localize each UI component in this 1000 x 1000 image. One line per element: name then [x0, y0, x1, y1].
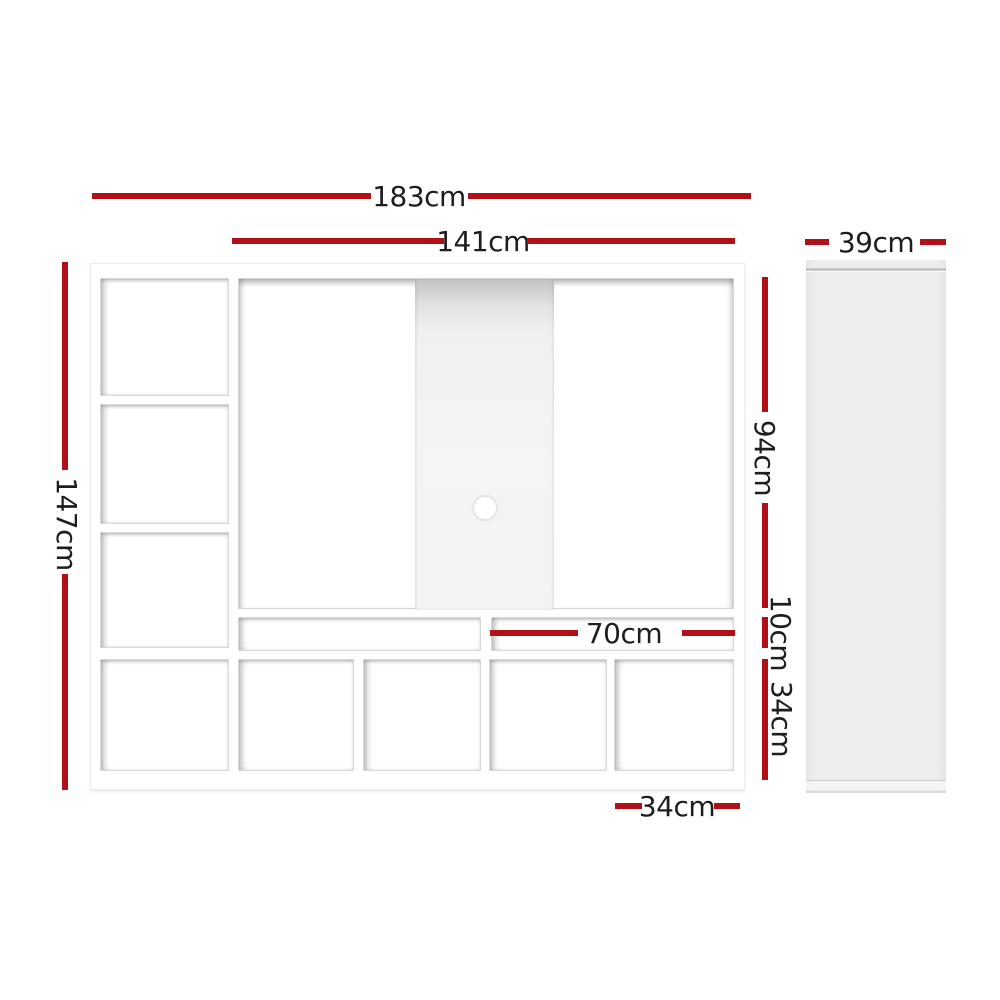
cubby-opening-2 [238, 659, 354, 771]
dimension-diagram: 183cm 141cm 39cm 147cm 94cm 10cm 34cm 70… [0, 0, 1000, 1000]
dim-tv-height-label: 94cm [750, 420, 778, 496]
shelf-opening-left-top [100, 278, 229, 396]
dim-shelf-width-line-right [682, 630, 735, 636]
dim-tv-width-line-right [527, 238, 735, 244]
shelf-opening-left-bottom [100, 532, 229, 648]
media-shelf-opening-left [238, 617, 481, 651]
dim-overall-width-line-right [468, 193, 751, 199]
dim-tv-width-label: 141cm [436, 228, 530, 256]
dim-cubby-width-label: 34cm [639, 793, 715, 821]
dim-overall-height-line-top [62, 262, 68, 470]
dim-overall-height-line-bottom [62, 574, 68, 790]
cubby-opening-3 [363, 659, 481, 771]
dim-overall-width-line-left [92, 193, 371, 199]
dim-cubby-width-line-right [714, 803, 740, 809]
side-view-top-edge [806, 268, 946, 272]
cubby-opening-4 [489, 659, 607, 771]
cable-hole [473, 496, 497, 520]
cubby-opening-5 [614, 659, 734, 771]
dim-tv-height-line-top [762, 277, 768, 412]
dim-overall-width-label: 183cm [372, 183, 466, 211]
dim-shelf-height-label: 10cm [766, 595, 794, 671]
wall-unit-front-view [90, 263, 745, 790]
wall-unit-side-view [806, 260, 946, 793]
dim-depth-line-right [920, 239, 946, 245]
tv-opening [238, 278, 734, 609]
cubby-opening-1 [100, 659, 229, 771]
tv-back-panel [415, 279, 554, 610]
dim-cubby-height-label: 34cm [767, 681, 795, 757]
dim-depth-line-left [805, 239, 829, 245]
dim-overall-height-label: 147cm [52, 477, 80, 571]
shelf-opening-left-middle [100, 404, 229, 524]
dim-tv-width-line-left [232, 238, 444, 244]
side-view-base-plinth [806, 780, 946, 790]
dim-tv-height-line-bottom [762, 503, 768, 608]
dim-shelf-width-line-left [490, 630, 578, 636]
dim-shelf-width-label: 70cm [586, 620, 662, 648]
dim-depth-label: 39cm [838, 229, 914, 257]
